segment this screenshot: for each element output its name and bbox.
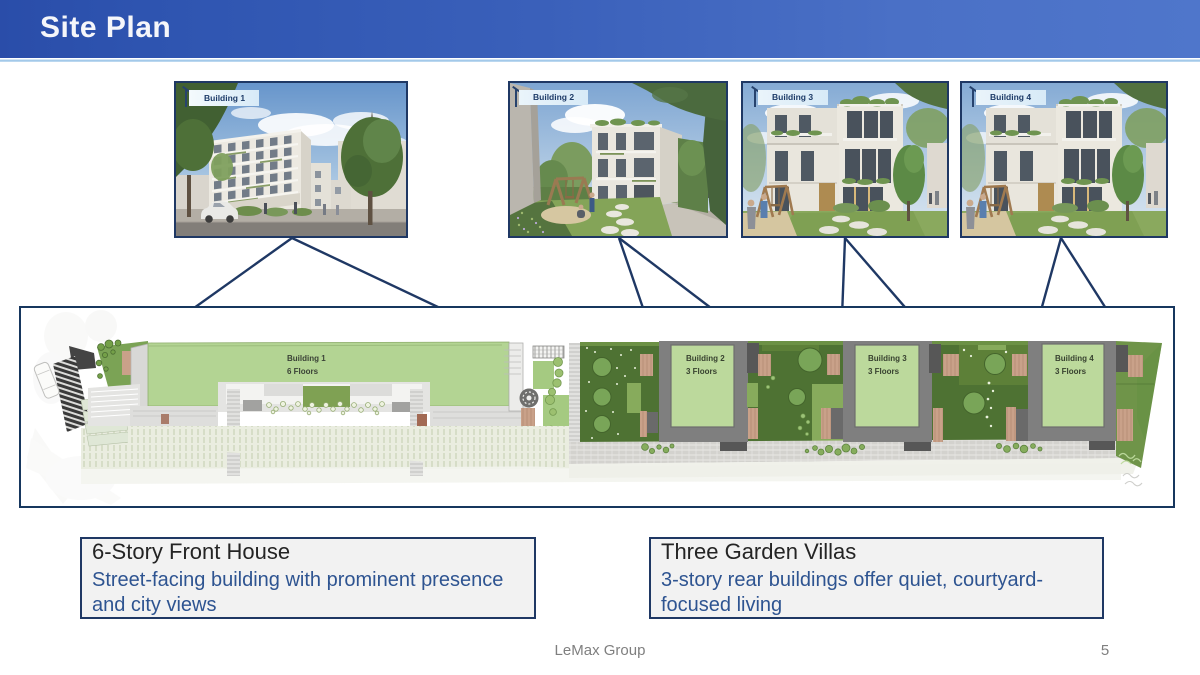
svg-text:Building 1: Building 1	[287, 354, 326, 363]
svg-text:Building 3: Building 3	[868, 354, 907, 363]
svg-text:6 Floors: 6 Floors	[287, 367, 319, 376]
svg-text:Building 2: Building 2	[686, 354, 725, 363]
svg-text:3 Floors: 3 Floors	[686, 367, 718, 376]
svg-text:Building 4: Building 4	[1055, 354, 1094, 363]
svg-text:3 Floors: 3 Floors	[868, 367, 900, 376]
svg-text:3 Floors: 3 Floors	[1055, 367, 1087, 376]
